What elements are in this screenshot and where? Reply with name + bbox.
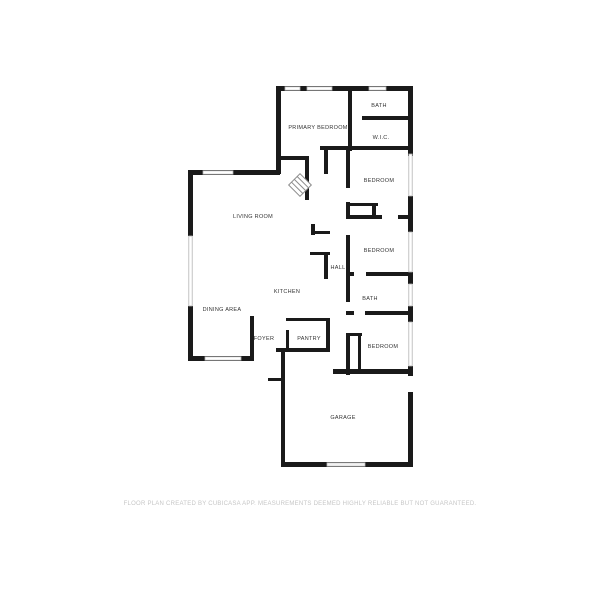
room-label-primary-bedroom: PRIMARY BEDROOM: [288, 125, 347, 131]
room-label-bedroom-2: BEDROOM: [364, 248, 395, 254]
walls: [188, 86, 413, 467]
room-label-foyer: FOYER: [254, 336, 274, 342]
room-label-kitchen: KITCHEN: [274, 289, 300, 295]
disclaimer-text: FLOOR PLAN CREATED BY CUBICASA APP. MEAS…: [0, 501, 600, 507]
floor-plan-page: BATH PRIMARY BEDROOM W.I.C. BEDROOM LIVI…: [0, 0, 600, 600]
room-label-garage: GARAGE: [330, 415, 355, 421]
garage-door: [327, 463, 365, 466]
room-label-bedroom-3: BEDROOM: [368, 344, 399, 350]
room-label-wic: W.I.C.: [373, 135, 390, 141]
floor-plan-drawing: [0, 0, 600, 600]
room-label-hall: HALL: [331, 265, 346, 271]
room-label-bath-lower: BATH: [362, 296, 377, 302]
room-label-bedroom-1: BEDROOM: [364, 178, 395, 184]
room-label-dining-area: DINING AREA: [203, 307, 242, 313]
room-label-bath-upper: BATH: [371, 103, 386, 109]
room-label-pantry: PANTRY: [297, 336, 321, 342]
room-label-living-room: LIVING ROOM: [233, 214, 273, 220]
